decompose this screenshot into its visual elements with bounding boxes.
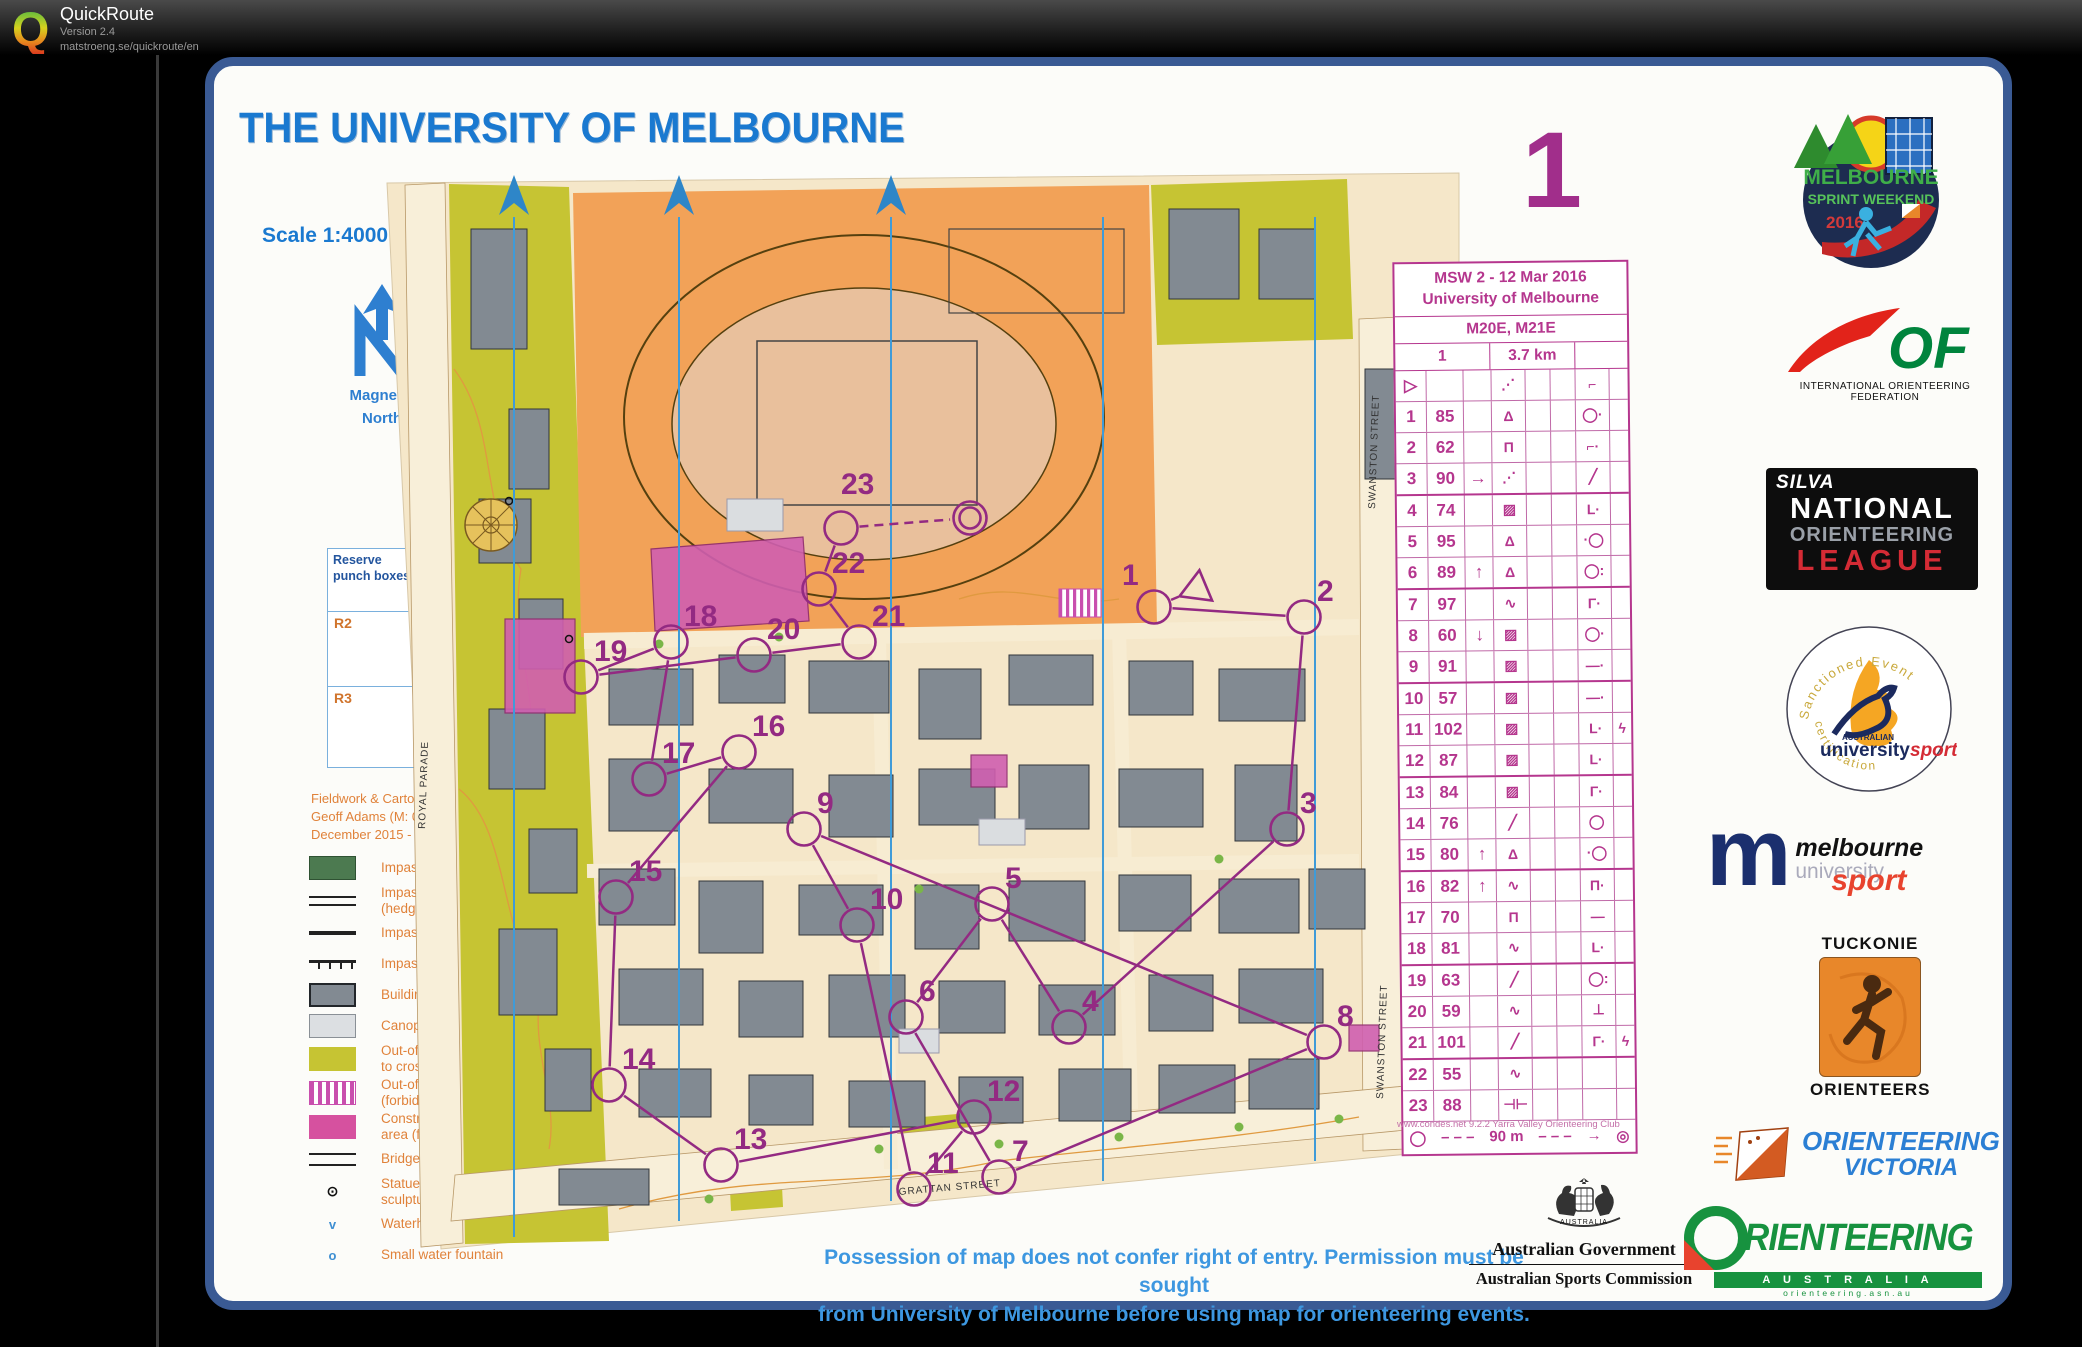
oa-australia-bar: A U S T R A L I A: [1714, 1272, 1982, 1288]
gov-line2: Australian Sports Commission: [1459, 1269, 1709, 1289]
melbourne-university-sport-logo: m melbourne university sport: [1706, 818, 2026, 910]
control-number: 3: [1300, 787, 1317, 820]
card-length: 3.7 km: [1490, 342, 1575, 369]
card-control-row: 595Δ·◯: [1397, 525, 1629, 558]
card-control-row: 21101╱Γ·ϟ: [1402, 1026, 1634, 1060]
svg-text:university: university: [1820, 740, 1910, 761]
card-control-row: 2255∿: [1403, 1058, 1635, 1091]
canopy-swatch-icon: [309, 1014, 356, 1038]
card-control-row: 1963╱◯:: [1402, 964, 1634, 997]
control-number: 22: [832, 547, 865, 580]
mu-m-icon: m: [1706, 818, 1785, 887]
control-number: 8: [1337, 1000, 1354, 1033]
card-control-row: 1770Π—: [1401, 901, 1633, 934]
svg-text:OF: OF: [1888, 316, 1970, 380]
control-number: 18: [684, 600, 717, 633]
card-control-row: 1881∿L·: [1401, 932, 1633, 966]
card-control-row: 860↓▨◯·: [1398, 619, 1630, 652]
card-control-row: 1580↑Δ·◯: [1400, 838, 1632, 872]
oa-url: orienteering.asn.au: [1714, 1288, 1982, 1298]
control-number: 2: [1317, 575, 1334, 608]
card-control-row: 1682↑∿Π·: [1401, 870, 1633, 903]
card-control-row: 185Δ◯·: [1396, 400, 1628, 433]
page-title: THE UNIVERSITY OF MELBOURNE: [239, 104, 905, 153]
control-number: 10: [870, 883, 903, 916]
control-number: 5: [1005, 862, 1022, 895]
out-of-bounds-area-swatch-icon: [309, 1081, 356, 1105]
control-number: 15: [629, 855, 662, 888]
card-control-row: 474▨L·: [1397, 494, 1629, 527]
tuckonie-runner-icon: [1819, 957, 1921, 1077]
card-control-row: 11102▨L·ϟ: [1399, 713, 1631, 746]
control-number: 23: [841, 468, 874, 501]
control-number: 14: [622, 1043, 656, 1076]
app-name: QuickRoute: [60, 4, 199, 25]
card-classes: M20E, M21E: [1395, 315, 1627, 344]
control-description-card: MSW 2 - 12 Mar 2016 University of Melbou…: [1392, 260, 1637, 1156]
course-number: 1: [1522, 116, 1582, 224]
control-number: 17: [662, 737, 695, 770]
quickroute-logo-icon: Q: [6, 2, 58, 54]
card-control-row: 1384▨Γ·: [1400, 776, 1632, 809]
control-number: 16: [752, 710, 785, 743]
quickroute-window: Q QuickRoute Version 2.4 matstroeng.se/q…: [0, 0, 2082, 1347]
orienteering-australia-logo: RIENTEERING A U S T R A L I A orienteeri…: [1684, 1206, 2014, 1298]
melbourne-sprint-weekend-logo: MELBOURNE SPRINT WEEKEND 2016: [1764, 104, 1979, 272]
app-header: Q QuickRoute Version 2.4 matstroeng.se/q…: [0, 0, 2082, 55]
control-number: 9: [817, 787, 834, 820]
app-version: Version 2.4: [60, 25, 199, 40]
svg-text:sport: sport: [1910, 740, 1957, 761]
iof-logo: OF INTERNATIONAL ORIENTEERING FEDERATION: [1770, 306, 2000, 403]
card-control-row: 2388⊣⊢: [1403, 1089, 1635, 1122]
map-page: THE UNIVERSITY OF MELBOURNE Scale 1:4000…: [205, 57, 2012, 1310]
card-control-row: 390→⋰╱: [1396, 462, 1628, 496]
silva-nol-logo: SILVA NATIONAL ORIENTEERING LEAGUE: [1766, 468, 1978, 590]
waterhole-swatch-icon: v: [309, 1213, 356, 1235]
impassable-wall-swatch-icon: [309, 931, 356, 935]
possession-notice: Possession of map does not confer right …: [814, 1244, 1534, 1329]
building-swatch-icon: [309, 983, 356, 1007]
control-number: 6: [919, 975, 936, 1008]
card-start-row: ▷⋰⌐: [1395, 369, 1627, 402]
card-control-row: 262Π⌐·: [1396, 431, 1628, 464]
out-of-bounds-swatch-icon: [309, 1047, 356, 1071]
control-number: 4: [1082, 985, 1099, 1018]
card-control-row: 797∿Γ·: [1398, 588, 1630, 621]
control-number: 19: [594, 635, 627, 668]
impassable-fence-swatch-icon: [309, 960, 356, 969]
coat-of-arms-icon: AUSTRALIA: [1534, 1166, 1634, 1232]
control-number: 12: [987, 1075, 1020, 1108]
svg-text:MELBOURNE: MELBOURNE: [1803, 166, 1938, 189]
svg-text:Q: Q: [12, 4, 49, 54]
svg-text:2016: 2016: [1826, 213, 1864, 232]
bridge-swatch-icon: [309, 1153, 356, 1166]
app-url-link[interactable]: matstroeng.se/quickroute/en: [60, 40, 199, 55]
card-control-row: 689↑Δ◯:: [1397, 556, 1629, 590]
control-number: 7: [1012, 1135, 1029, 1168]
card-title: MSW 2 - 12 Mar 2016 University of Melbou…: [1394, 262, 1627, 317]
impassable-vegetation-swatch-icon: [309, 856, 356, 880]
card-control-row: 2059∿⊥: [1402, 995, 1634, 1028]
out-of-bounds-hatched: [1059, 589, 1101, 617]
control-number: 20: [767, 613, 800, 646]
card-course: 1: [1395, 343, 1490, 370]
panel-divider: [156, 55, 159, 1347]
card-control-row: 991▨—·: [1398, 650, 1630, 684]
iof-caption: INTERNATIONAL ORIENTEERING FEDERATION: [1770, 381, 2000, 403]
card-course-row: 1 3.7 km: [1395, 342, 1627, 371]
control-number: 21: [872, 600, 905, 633]
card-credit: www.condes.net 9.2.2 Yarra Valley Orient…: [1397, 1119, 1637, 1130]
card-control-row: 1057▨—·: [1399, 682, 1631, 715]
control-number: 1: [1122, 559, 1139, 592]
australian-government-logo: AUSTRALIA Australian Government Australi…: [1459, 1166, 1709, 1289]
construction-swatch-icon: [309, 1115, 356, 1139]
card-control-row: 1476╱◯: [1400, 807, 1632, 840]
australian-university-sport-logo: Sanctioned Event certification AUSTRALIA…: [1782, 622, 1957, 797]
control-card-rows: ▷⋰⌐185Δ◯·262Π⌐·390→⋰╱474▨L·595Δ·◯689↑Δ◯:…: [1395, 369, 1635, 1122]
fountain-swatch-icon: o: [309, 1244, 356, 1266]
impassable-vegetation-hedge-swatch-icon: [309, 896, 356, 906]
map-canvas[interactable]: ROYAL PARADE SWANSTON STREET SWANSTON ST…: [359, 169, 1469, 1274]
svg-text:AUSTRALIA: AUSTRALIA: [1560, 1219, 1608, 1226]
orienteering-victoria-logo: ORIENTEERING VICTORIA: [1714, 1124, 2034, 1184]
card-control-row: 1287▨L·: [1399, 744, 1631, 778]
gov-line1: Australian Government: [1459, 1239, 1709, 1260]
tuckonie-orienteers-logo: TUCKONIE ORIENTEERS: [1810, 934, 1930, 1100]
control-number: 13: [734, 1123, 767, 1156]
control-number: 11: [927, 1147, 959, 1180]
ov-flag-icon: [1714, 1124, 1794, 1184]
statue-swatch-icon: ⊙: [309, 1181, 356, 1203]
oa-o-ring-icon: [1684, 1206, 1748, 1270]
